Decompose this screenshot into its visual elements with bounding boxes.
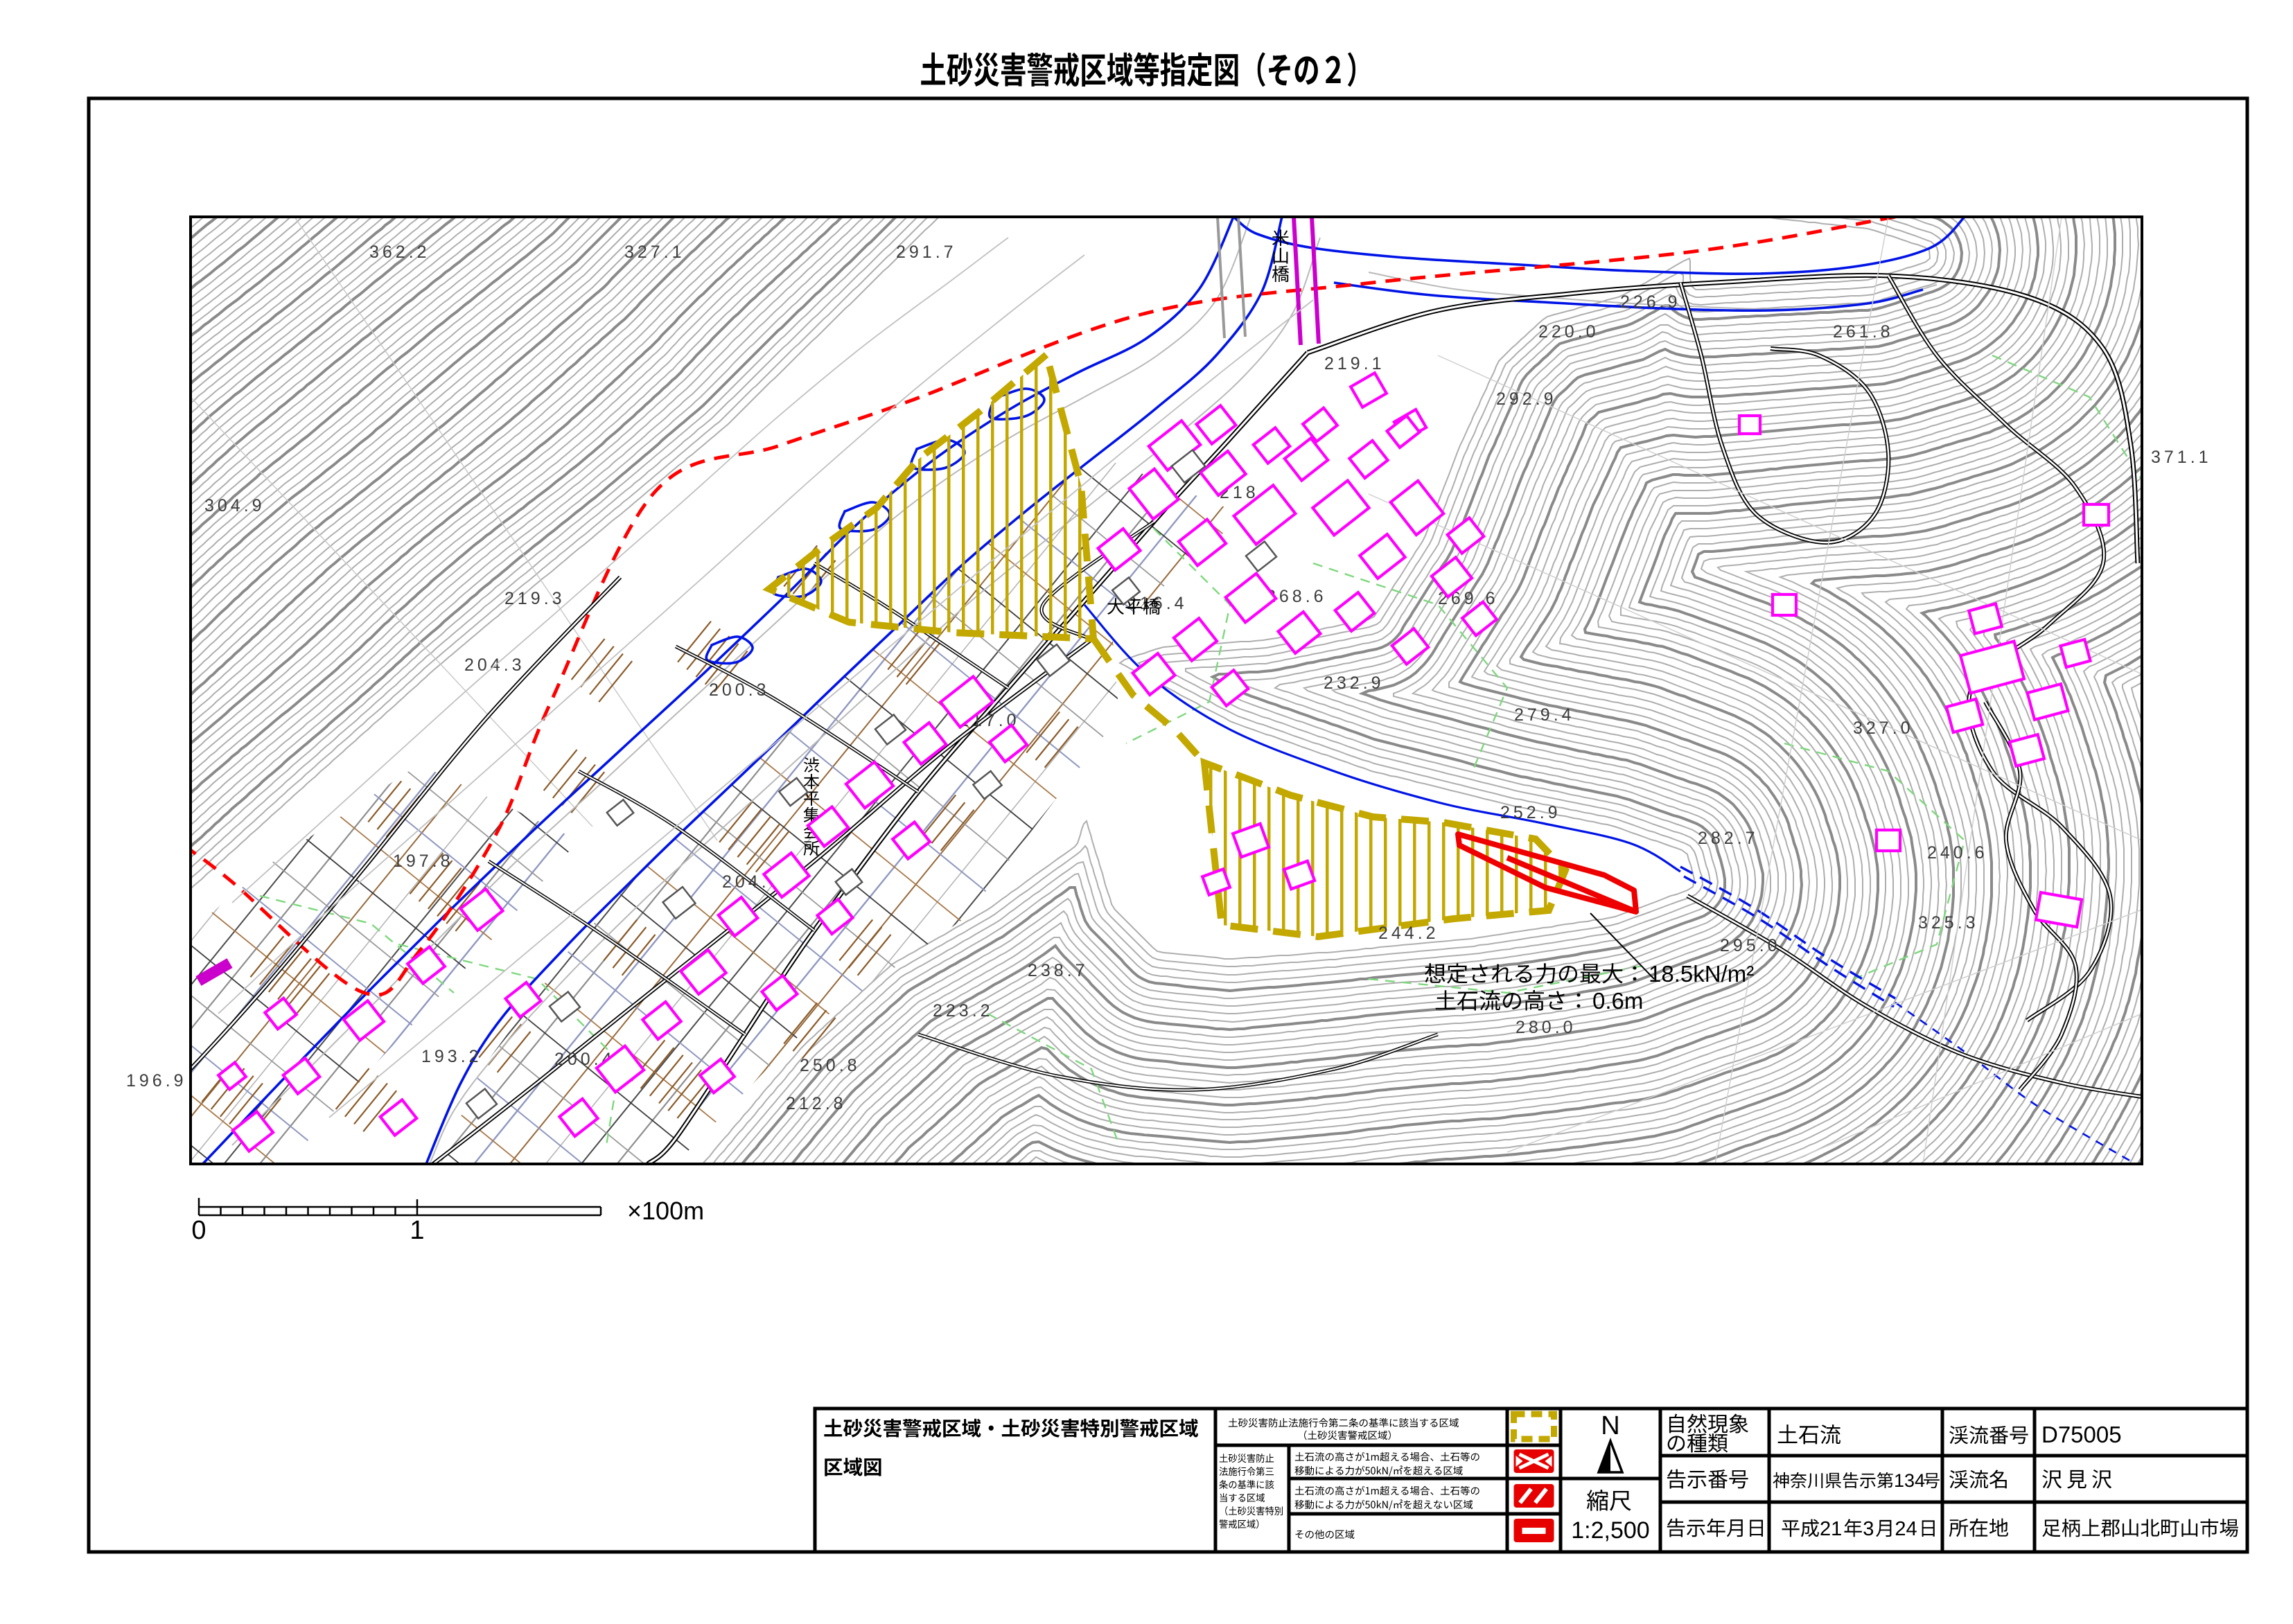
svg-text:220.0: 220.0 [1538, 322, 1599, 342]
svg-text:0.6m: 0.6m [1592, 988, 1643, 1014]
svg-text:282.7: 282.7 [1698, 829, 1759, 848]
svg-text:279.4: 279.4 [1514, 705, 1575, 725]
svg-text:223.2: 223.2 [933, 1001, 994, 1021]
svg-text:362.2: 362.2 [369, 242, 430, 262]
svg-text:327.1: 327.1 [624, 242, 685, 262]
svg-text:×100m: ×100m [627, 1197, 704, 1225]
svg-text:134: 134 [1894, 1470, 1925, 1491]
svg-text:197.8: 197.8 [393, 851, 454, 871]
svg-text:1:2,500: 1:2,500 [1571, 1517, 1649, 1544]
svg-text:371.1: 371.1 [2151, 448, 2212, 467]
svg-text:196.9: 196.9 [126, 1071, 187, 1091]
svg-text:292.9: 292.9 [1496, 389, 1557, 409]
svg-text:N: N [1601, 1411, 1619, 1440]
svg-text:219.3: 219.3 [504, 589, 565, 608]
svg-text:18.5kN/m²: 18.5kN/m² [1649, 961, 1754, 987]
svg-text:0: 0 [191, 1216, 206, 1245]
svg-text:232.9: 232.9 [1324, 673, 1385, 693]
svg-text:238.7: 238.7 [1028, 961, 1089, 980]
svg-text:327.0: 327.0 [1853, 718, 1914, 738]
svg-text:291.7: 291.7 [896, 242, 957, 262]
svg-text:295.0: 295.0 [1720, 936, 1781, 955]
svg-text:261.8: 261.8 [1833, 322, 1894, 342]
svg-text:250.8: 250.8 [800, 1056, 861, 1075]
svg-text:21: 21 [1820, 1518, 1842, 1540]
svg-text:219.1: 219.1 [1324, 354, 1385, 373]
svg-text:193.2: 193.2 [421, 1047, 482, 1066]
svg-text:D75005: D75005 [2041, 1422, 2122, 1447]
svg-text:212.8: 212.8 [786, 1094, 847, 1113]
svg-text:3: 3 [1863, 1518, 1874, 1540]
svg-text:280.0: 280.0 [1516, 1018, 1576, 1037]
svg-text:240.6: 240.6 [1927, 843, 1988, 863]
svg-text:244.2: 244.2 [1378, 924, 1439, 943]
svg-text:226.9: 226.9 [1620, 292, 1681, 312]
svg-text:200.3: 200.3 [709, 680, 770, 700]
svg-text:325.3: 325.3 [1918, 913, 1979, 933]
svg-text:24: 24 [1895, 1518, 1917, 1540]
svg-text:252.9: 252.9 [1500, 803, 1561, 822]
svg-text:1: 1 [410, 1216, 424, 1245]
svg-text:304.9: 304.9 [204, 496, 265, 515]
